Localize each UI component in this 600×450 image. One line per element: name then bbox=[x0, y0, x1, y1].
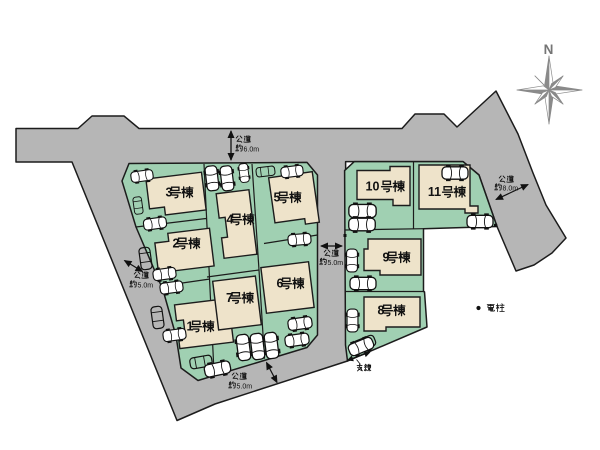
svg-text:5.0m: 5.0m bbox=[328, 260, 344, 267]
svg-text:10: 10 bbox=[366, 180, 380, 194]
svg-text:6.0m: 6.0m bbox=[244, 147, 260, 154]
svg-text:8.0m: 8.0m bbox=[503, 186, 519, 193]
svg-text:5.0m: 5.0m bbox=[138, 283, 154, 290]
svg-text:N: N bbox=[544, 42, 554, 57]
svg-text:11: 11 bbox=[428, 185, 441, 199]
svg-text:5.0m: 5.0m bbox=[237, 384, 253, 391]
